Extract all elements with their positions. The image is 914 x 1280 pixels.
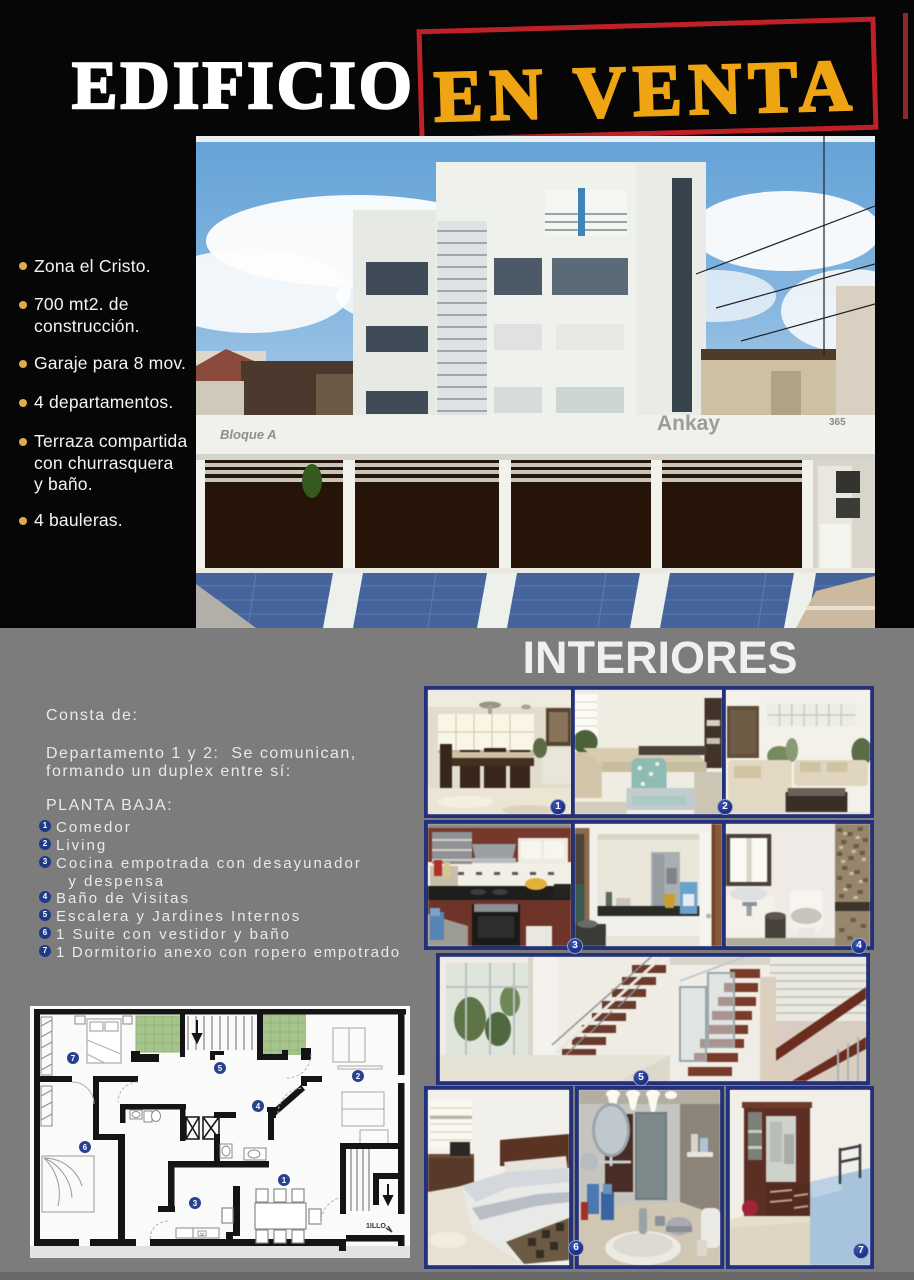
svg-text:3: 3 <box>193 1199 198 1208</box>
svg-text:6: 6 <box>83 1143 88 1152</box>
svg-text:1: 1 <box>282 1176 287 1185</box>
svg-text:365: 365 <box>829 417 846 428</box>
svg-text:4: 4 <box>256 1102 261 1111</box>
svg-text:Bloque A: Bloque A <box>220 427 277 442</box>
svg-text:2: 2 <box>356 1072 361 1081</box>
svg-text:1ILLO: 1ILLO <box>366 1223 386 1230</box>
svg-text:7: 7 <box>71 1054 76 1063</box>
svg-text:5: 5 <box>218 1064 223 1073</box>
svg-text:Ankay: Ankay <box>657 412 720 435</box>
